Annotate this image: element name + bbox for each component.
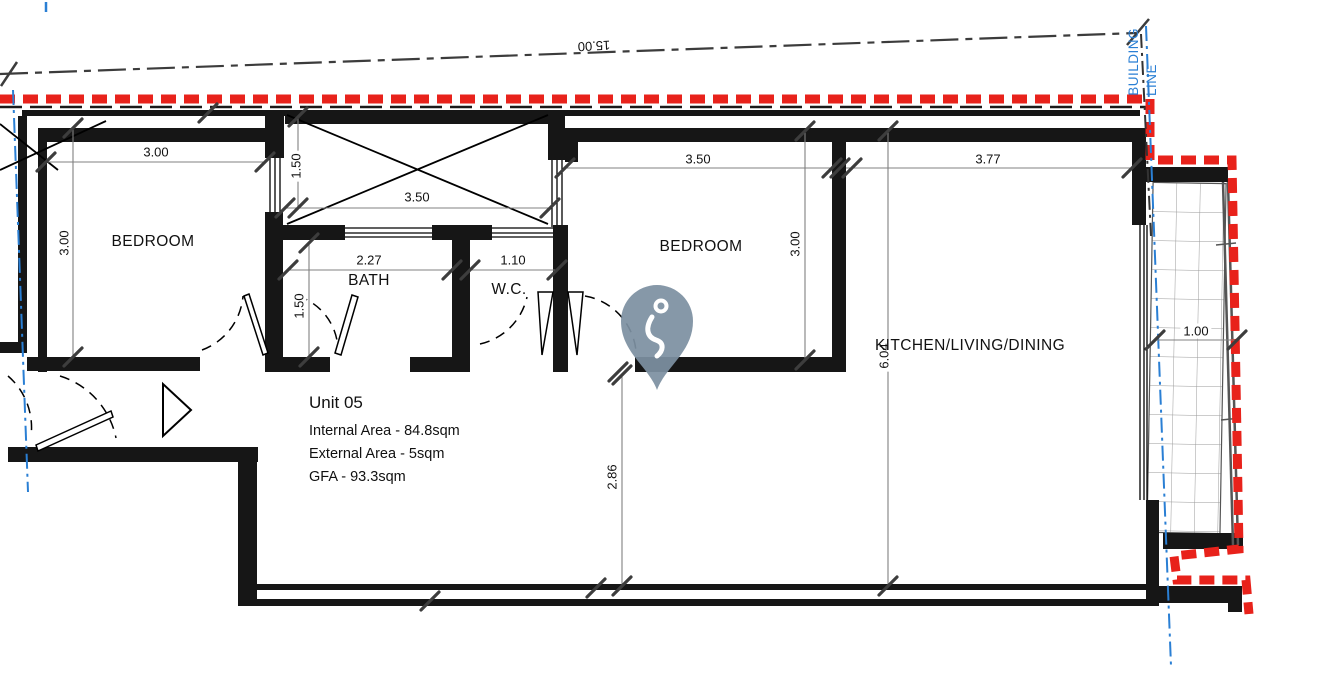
room-label-bedroom-1: BEDROOM <box>112 233 195 251</box>
floor-plan-viewer: BEDROOM BEDROOM BATH W.C. 3.00 3.00 1.50… <box>0 0 1324 673</box>
entrance-arrow-icon <box>163 384 191 436</box>
building-line-label: BUILDING LINE <box>1126 2 1166 96</box>
room-label-kitchen: KITCHEN/LIVING/DINING <box>875 337 1065 355</box>
building-line-word-1: BUILDING <box>1126 28 1141 96</box>
dim-bath-depth: 1.50 <box>292 290 307 321</box>
unit-internal-area: Internal Area - 84.8sqm <box>309 420 460 443</box>
dim-shaft-window-height: 1.50 <box>289 150 304 181</box>
dim-bedroom2-width: 3.50 <box>682 152 713 167</box>
unit-info-block: Unit 05 Internal Area - 84.8sqm External… <box>309 393 460 489</box>
unit-gfa: GFA - 93.3sqm <box>309 466 460 489</box>
unit-title: Unit 05 <box>309 393 460 413</box>
red-boundary-line <box>0 99 1249 614</box>
building-line-word-2: LINE <box>1144 64 1159 96</box>
dim-site-boundary: 15.00 <box>574 38 613 55</box>
dim-kitchen-width: 3.77 <box>972 152 1003 167</box>
balcony-tile-grid <box>1147 182 1226 533</box>
dim-bath-width: 2.27 <box>353 253 384 268</box>
dim-bedroom2-depth: 3.00 <box>788 228 803 259</box>
room-label-wc: W.C. <box>491 281 526 299</box>
dim-balcony-width: 1.00 <box>1180 324 1211 339</box>
dim-shaft-width: 3.50 <box>401 190 432 205</box>
map-pin-icon[interactable] <box>621 285 693 390</box>
dim-wc-width: 1.10 <box>497 253 528 268</box>
room-label-bedroom-2: BEDROOM <box>660 238 743 256</box>
dim-bedroom1-depth: 3.00 <box>57 227 72 258</box>
dim-bedroom1-width: 3.00 <box>140 145 171 160</box>
dim-hall-depth: 2.86 <box>605 461 620 492</box>
floor-plan-drawing <box>0 0 1324 673</box>
unit-external-area: External Area - 5sqm <box>309 443 460 466</box>
room-label-bath: BATH <box>348 272 390 290</box>
